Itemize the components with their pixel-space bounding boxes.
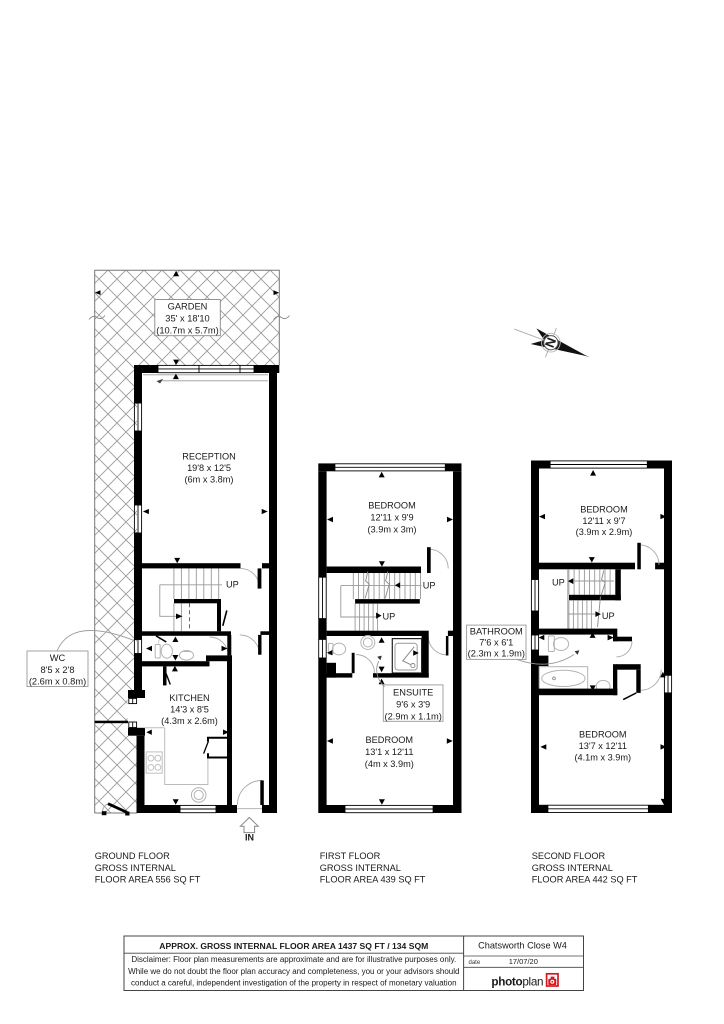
svg-text:FLOOR AREA 439 SQ FT: FLOOR AREA 439 SQ FT [320,875,426,885]
svg-text:UP: UP [226,579,239,589]
svg-text:FLOOR AREA 442 SQ FT: FLOOR AREA 442 SQ FT [532,875,638,885]
svg-text:BEDROOM: BEDROOM [366,735,413,745]
svg-text:13'1 x 12'11: 13'1 x 12'11 [365,747,413,757]
svg-text:(2.9m x 1.1m): (2.9m x 1.1m) [385,711,442,721]
svg-text:KITCHEN: KITCHEN [169,693,209,703]
svg-text:(6m x 3.8m): (6m x 3.8m) [184,475,233,485]
svg-text:UP: UP [423,581,436,591]
svg-text:(4.3m x 2.6m): (4.3m x 2.6m) [161,716,218,726]
svg-text:35' x 18'10: 35' x 18'10 [165,313,209,323]
svg-text:BATHROOM: BATHROOM [470,627,523,637]
svg-text:GROUND FLOOR: GROUND FLOOR [95,851,170,861]
svg-text:13'7 x 12'11: 13'7 x 12'11 [579,741,627,751]
svg-text:UP: UP [602,611,615,621]
svg-text:While we do not doubt the floo: While we do not doubt the floor plan acc… [128,967,459,976]
svg-text:GROSS INTERNAL: GROSS INTERNAL [95,863,176,873]
svg-text:(2.6m x 0.8m): (2.6m x 0.8m) [29,677,86,687]
svg-text:RECEPTION: RECEPTION [182,452,236,462]
svg-text:UP: UP [383,611,396,621]
svg-text:WC: WC [50,653,66,663]
svg-text:APPROX. GROSS INTERNAL FLOOR A: APPROX. GROSS INTERNAL FLOOR AREA 1437 S… [159,941,428,951]
svg-text:GROSS INTERNAL: GROSS INTERNAL [320,863,401,873]
svg-text:conduct a careful, independent: conduct a careful, independent investiga… [131,979,457,988]
svg-text:12'11 x 9'7: 12'11 x 9'7 [582,516,625,526]
svg-text:ENSUITE: ENSUITE [393,688,433,698]
svg-text:SECOND FLOOR: SECOND FLOOR [532,851,606,861]
svg-text:19'8 x 12'5: 19'8 x 12'5 [187,463,231,473]
svg-text:17/07/20: 17/07/20 [509,957,538,966]
svg-text:IN: IN [245,833,254,843]
svg-text:date: date [469,960,481,966]
svg-text:(10.7m x 5.7m): (10.7m x 5.7m) [156,325,219,335]
svg-text:(2.3m x 1.9m): (2.3m x 1.9m) [468,649,525,659]
svg-text:Chatsworth Close W4: Chatsworth Close W4 [478,940,567,950]
svg-text:BEDROOM: BEDROOM [368,500,415,510]
svg-text:12'11 x 9'9: 12'11 x 9'9 [370,513,413,523]
svg-text:(4.1m x 3.9m): (4.1m x 3.9m) [574,752,631,762]
svg-text:BEDROOM: BEDROOM [579,730,626,740]
svg-text:UP: UP [552,577,565,587]
svg-text:(3.9m x 2.9m): (3.9m x 2.9m) [576,527,633,537]
svg-text:9'6 x 3'9: 9'6 x 3'9 [396,700,430,710]
svg-text:14'3 x 8'5: 14'3 x 8'5 [170,705,209,715]
svg-text:7'6 x 6'1: 7'6 x 6'1 [479,637,513,647]
svg-text:BEDROOM: BEDROOM [580,504,627,514]
svg-text:photoplan: photoplan [491,975,543,988]
svg-text:FIRST FLOOR: FIRST FLOOR [320,851,381,861]
svg-text:(4m x 3.9m): (4m x 3.9m) [365,759,414,769]
svg-text:FLOOR AREA 556 SQ FT: FLOOR AREA 556 SQ FT [95,875,201,885]
svg-text:GARDEN: GARDEN [168,301,208,311]
svg-text:GROSS INTERNAL: GROSS INTERNAL [532,863,613,873]
svg-text:8'5 x 2'8: 8'5 x 2'8 [40,665,74,675]
svg-text:(3.9m x 3m): (3.9m x 3m) [367,524,416,534]
svg-text:Disclaimer: Floor plan measure: Disclaimer: Floor plan measurements are … [131,955,456,964]
